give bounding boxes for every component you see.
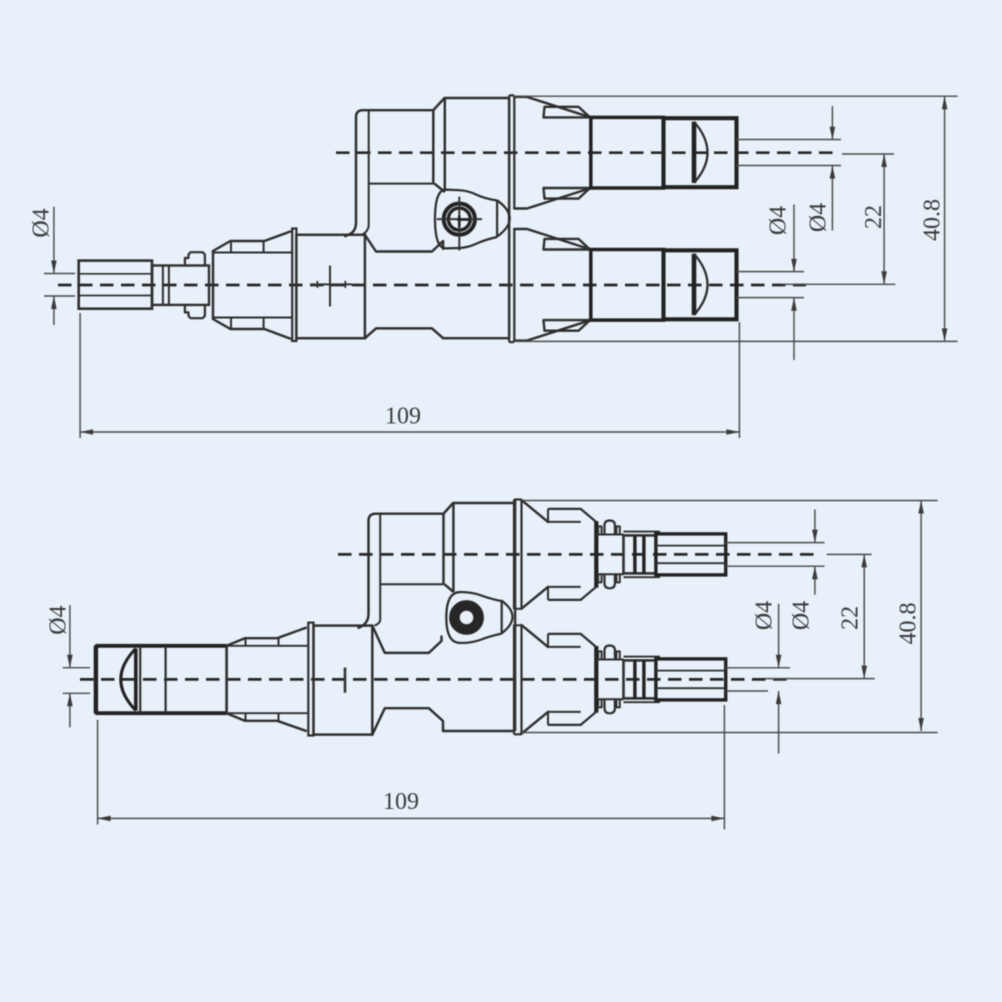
- svg-text:Ø4: Ø4: [752, 601, 778, 630]
- svg-text:22: 22: [838, 606, 864, 630]
- svg-text:109: 109: [383, 789, 419, 815]
- svg-text:40.8: 40.8: [896, 603, 922, 645]
- svg-text:22: 22: [861, 205, 887, 229]
- svg-text:109: 109: [385, 404, 421, 430]
- svg-text:Ø4: Ø4: [46, 605, 72, 634]
- svg-text:Ø4: Ø4: [789, 601, 815, 630]
- svg-text:Ø4: Ø4: [806, 203, 832, 232]
- svg-text:Ø4: Ø4: [766, 206, 792, 235]
- svg-text:Ø4: Ø4: [28, 208, 54, 237]
- svg-text:40.8: 40.8: [920, 199, 946, 241]
